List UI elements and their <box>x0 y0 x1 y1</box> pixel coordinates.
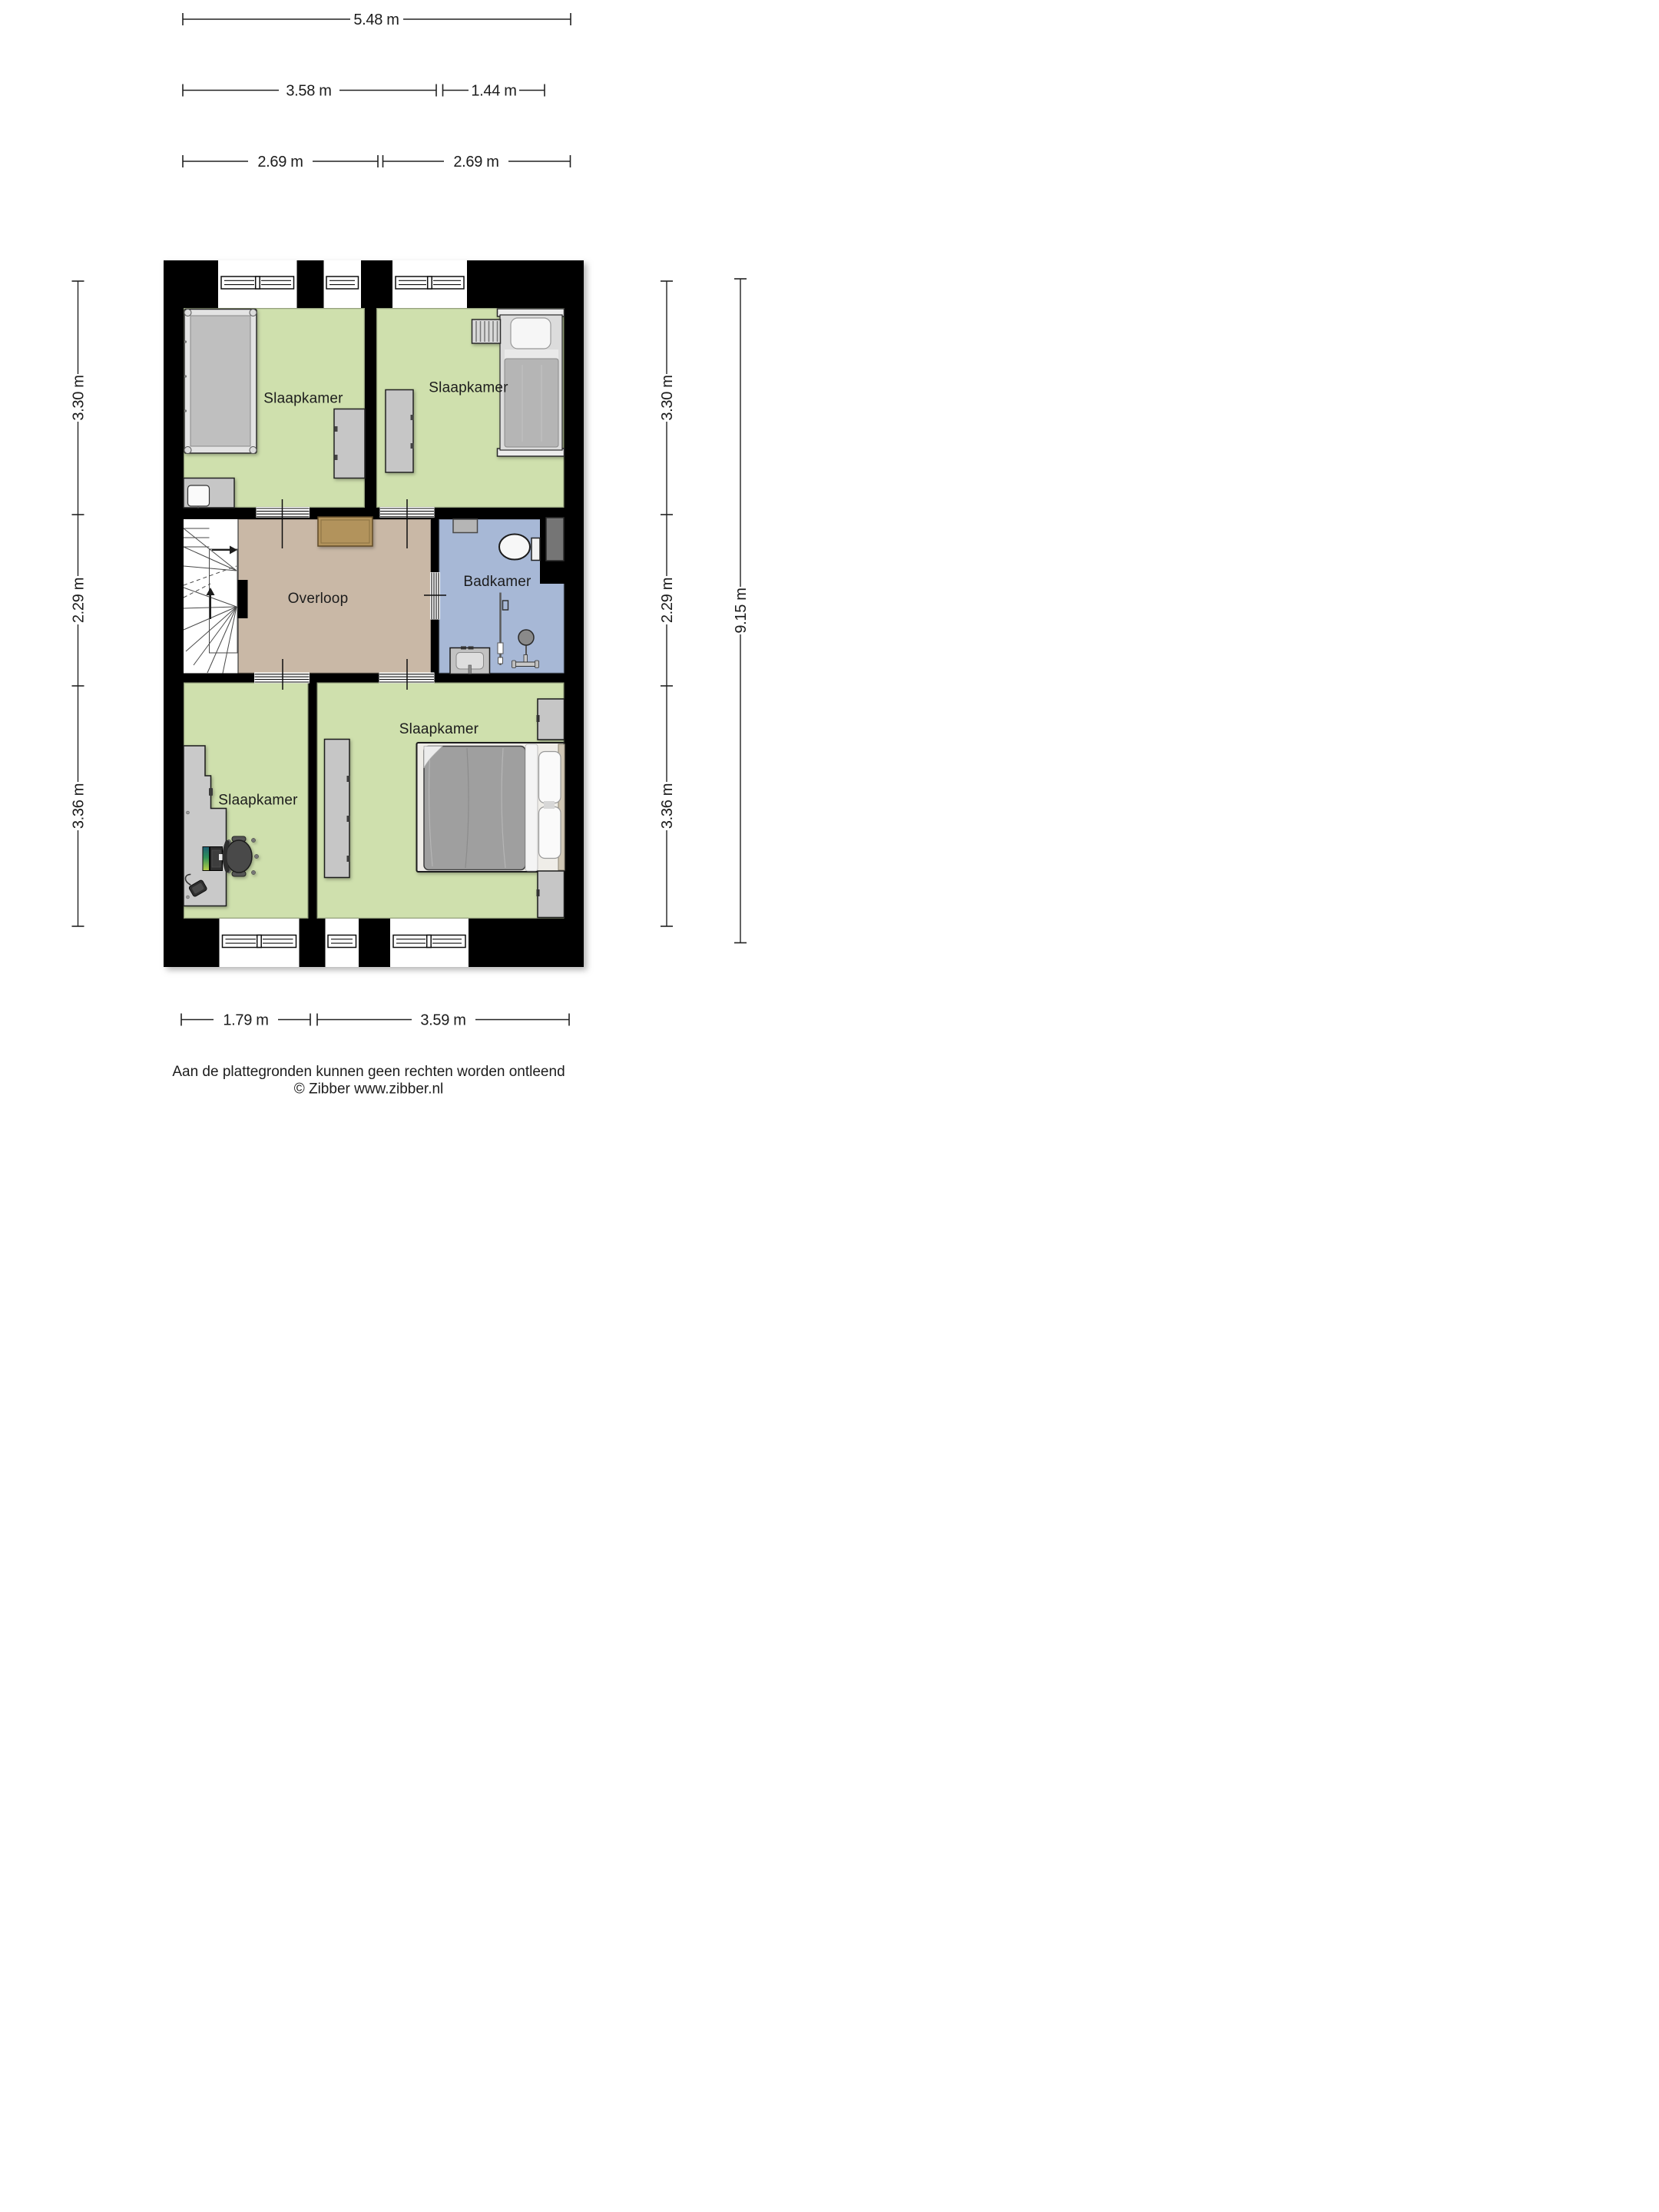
dim-label-top-left: 3.58 m <box>286 83 331 100</box>
dim-label-mid-left: 2.69 m <box>257 154 303 171</box>
window-top-2 <box>324 260 362 308</box>
dim-label-bottom-right: 3.59 m <box>420 1012 465 1029</box>
dim-label-mid-right: 2.69 m <box>453 154 498 171</box>
dim-label-right-2: 2.29 m <box>659 578 676 623</box>
toilet <box>499 535 540 561</box>
dim-top-row3: 2.69 m 2.69 m <box>183 154 571 171</box>
footer-disclaimer: Aan de plattegronden kunnen geen rechten… <box>172 1064 565 1080</box>
double-bed <box>417 743 565 872</box>
dim-left-column: 3.30 m 2.29 m 3.36 m <box>71 281 88 926</box>
dim-top-row2: 3.58 m 1.44 m <box>183 83 545 100</box>
dim-label-overall-top: 5.48 m <box>353 12 399 28</box>
ladder <box>472 320 501 343</box>
stair-wall-stub <box>237 580 248 618</box>
dim-label-overall-right: 9.15 m <box>733 588 750 633</box>
window-top-3 <box>392 260 467 308</box>
floorplan-canvas: 5.48 m 3.58 m 1.44 m 2.69 m 2.69 m <box>0 0 829 1106</box>
label-landing: Overloop <box>288 591 349 607</box>
dresser <box>386 390 414 473</box>
floorplan: Slaapkamer Slaapkamer Overloop Badkamer … <box>164 260 584 967</box>
window-bottom-2 <box>326 919 359 967</box>
pillow <box>539 752 561 803</box>
windows-top <box>218 260 467 308</box>
dim-label-right-3: 3.36 m <box>659 783 676 829</box>
windows-bottom <box>220 919 469 967</box>
dim-label-top-right: 1.44 m <box>471 83 516 100</box>
dim-label-bottom-left: 1.79 m <box>223 1012 268 1029</box>
dim-right-overall: 9.15 m <box>733 279 750 943</box>
monitor <box>203 847 210 871</box>
dim-bottom: 1.79 m 3.59 m <box>181 1012 569 1029</box>
wooden-cabinet <box>318 517 373 546</box>
dim-label-left-1: 3.30 m <box>71 375 88 420</box>
window-top-1 <box>218 260 297 308</box>
nightstand <box>184 478 234 508</box>
dim-label-left-2: 2.29 m <box>71 578 88 623</box>
label-bedroom-top-left: Slaapkamer <box>263 391 343 407</box>
dim-label-left-3: 3.36 m <box>71 783 88 829</box>
footer: Aan de plattegronden kunnen geen rechten… <box>172 1064 565 1098</box>
wardrobe-right-top <box>537 699 565 740</box>
shaft-duct <box>546 518 564 561</box>
label-bedroom-top-right: Slaapkamer <box>429 380 508 396</box>
radiator <box>453 519 478 533</box>
dim-right-column: 3.30 m 2.29 m 3.36 m <box>659 281 676 926</box>
landing-furniture <box>318 517 373 546</box>
window-bottom-3 <box>390 919 469 967</box>
label-bedroom-bottom-right: Slaapkamer <box>399 721 479 737</box>
bathroom-shaft <box>540 508 565 584</box>
window-bottom-1 <box>220 919 300 967</box>
sink <box>450 647 490 674</box>
shower-head <box>518 630 534 645</box>
pillow <box>539 807 561 859</box>
double-bed <box>184 310 257 454</box>
footer-copyright: © Zibber www.zibber.nl <box>294 1081 444 1098</box>
floorplan-page: 5.48 m 3.58 m 1.44 m 2.69 m 2.69 m <box>0 0 829 1106</box>
wardrobe-right-bottom <box>537 871 565 918</box>
dim-label-right-1: 3.30 m <box>659 375 676 420</box>
dresser <box>334 409 365 478</box>
laptop <box>210 847 223 871</box>
label-bathroom: Badkamer <box>463 574 531 590</box>
wardrobe-left <box>325 740 350 878</box>
dim-top-overall: 5.48 m <box>183 12 571 28</box>
label-bedroom-bottom-left: Slaapkamer <box>218 793 298 809</box>
